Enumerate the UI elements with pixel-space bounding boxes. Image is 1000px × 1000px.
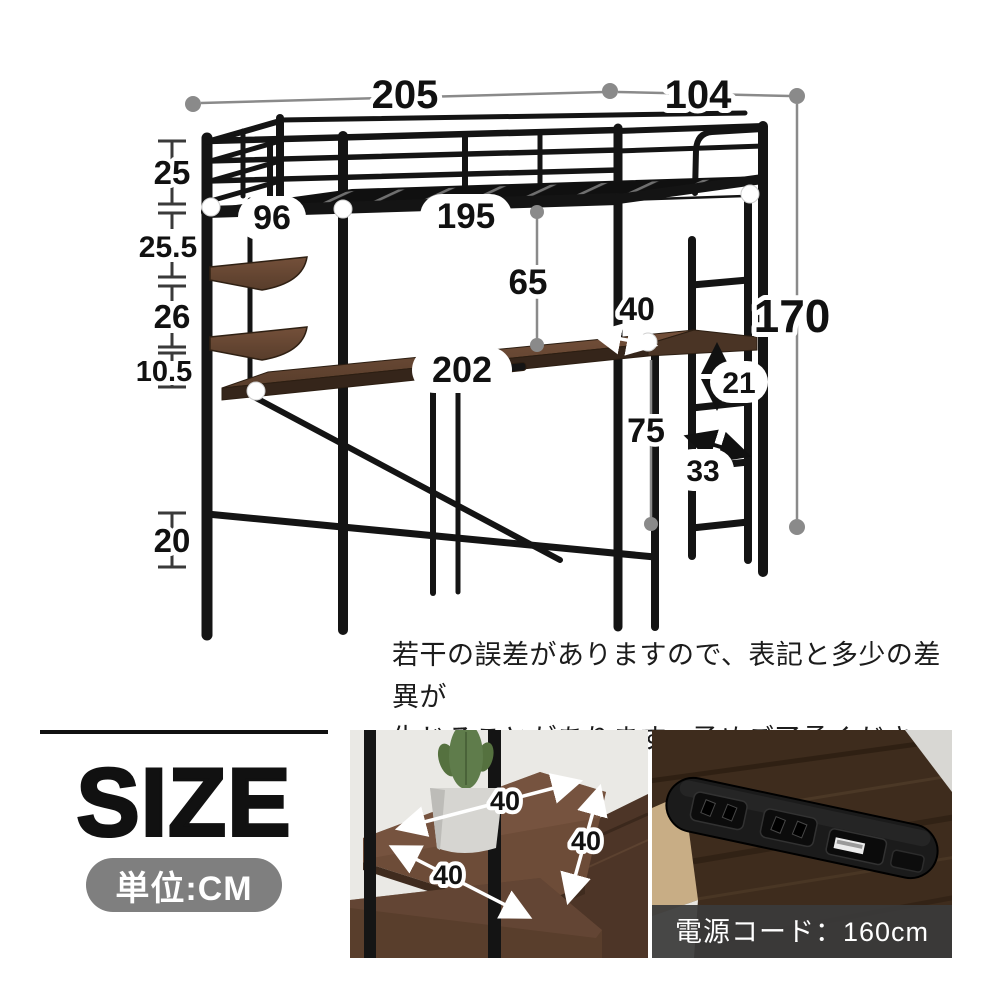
unit-badge: 単位:CM — [86, 858, 282, 912]
shelf-dim-c: 40 — [433, 860, 463, 890]
dim-lower-section: 10.5 — [136, 356, 192, 388]
dim-bed-inner-length: 195 — [437, 197, 495, 236]
dim-guard-rail-height: 25 — [154, 154, 191, 191]
dim-total-depth: 104 — [665, 73, 732, 117]
power-outlet-photo: 電源コード：160cm — [652, 730, 952, 958]
size-title: SIZE — [40, 759, 328, 847]
power-cord-caption: 電源コード：160cm — [675, 917, 929, 947]
loft-bed-dimension-drawing: 96 195 202 21 33 205 104 170 25 25.5 26 … — [0, 0, 1000, 660]
photo-left-pole — [364, 730, 376, 958]
shelf-dim-a: 40 — [490, 786, 520, 816]
dim-shelf-section: 26 — [154, 298, 191, 335]
dim-total-width: 205 — [372, 73, 439, 117]
dim-headboard-inner-width: 96 — [253, 199, 291, 237]
dim-desk-height: 75 — [627, 412, 665, 450]
disclaimer-line-1: 若干の誤差がありますので、表記と多少の差異が — [392, 634, 952, 718]
dim-ladder-width: 33 — [686, 455, 719, 488]
left-height-ticks — [158, 141, 186, 567]
corner-shelf-photo: 40 40 40 — [350, 730, 648, 958]
dim-desk-length: 202 — [432, 349, 492, 390]
dim-total-height: 170 — [754, 290, 831, 342]
dim-leg-bottom: 20 — [154, 522, 191, 559]
dim-upper-section: 25.5 — [139, 231, 197, 264]
caption-bar: 電源コード：160cm — [652, 905, 952, 958]
product-size-diagram-page: 96 195 202 21 33 205 104 170 25 25.5 26 … — [0, 0, 1000, 1000]
corner-shelves — [210, 257, 307, 360]
dim-desk-depth: 40 — [619, 291, 655, 327]
dim-ladder-step: 21 — [722, 367, 755, 400]
shelf-dim-b: 40 — [571, 826, 601, 856]
dim-under-bed-clearance: 65 — [509, 263, 548, 302]
divider-line — [40, 730, 328, 734]
size-panel: SIZE 単位:CM — [40, 730, 328, 912]
